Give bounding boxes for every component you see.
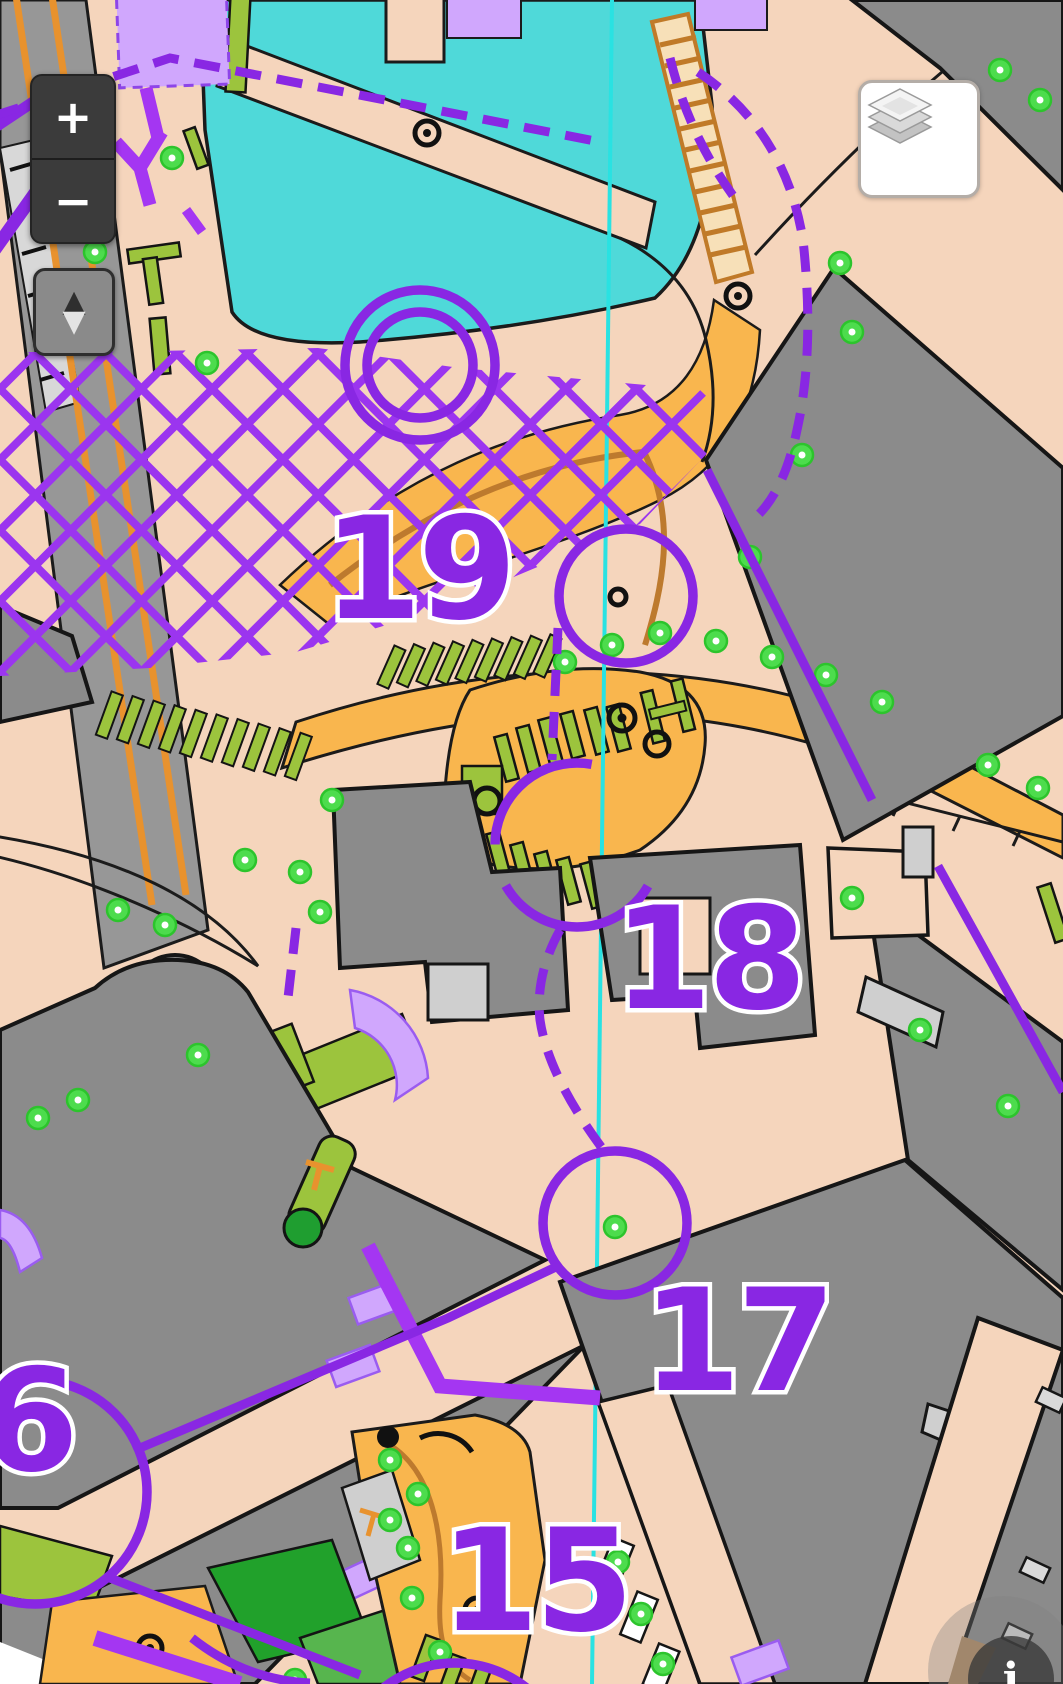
control-number-16: 16 <box>0 1339 75 1504</box>
map-viewer: 1516171819 + − ▲ ▼ i <box>0 0 1063 1684</box>
zoom-control: + − <box>30 74 116 244</box>
layers-icon <box>861 83 939 155</box>
arrow-down-icon: ▼ <box>62 309 85 335</box>
control-number-18: 18 <box>613 877 803 1042</box>
layers-button[interactable] <box>858 80 980 198</box>
map-canvas[interactable]: 1516171819 <box>0 0 1063 1684</box>
control-number-19: 19 <box>323 487 513 652</box>
zoom-out-button[interactable]: − <box>32 160 114 242</box>
zoom-in-button[interactable]: + <box>32 76 114 160</box>
pan-toggle-button[interactable]: ▲ ▼ <box>33 268 115 356</box>
control-number-15: 15 <box>440 1499 630 1664</box>
control-number-17: 17 <box>642 1259 832 1424</box>
